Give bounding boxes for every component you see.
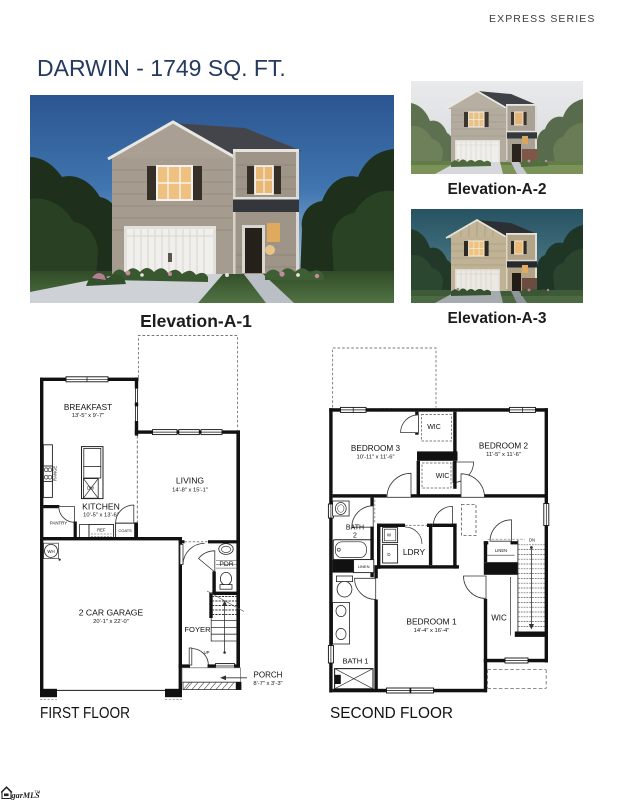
svg-text:BEDROOM 1: BEDROOM 1 (406, 617, 457, 627)
svg-text:WIC: WIC (436, 473, 450, 480)
svg-text:DW: DW (87, 486, 94, 491)
svg-text:KITCHEN: KITCHEN (82, 502, 120, 512)
svg-text:PORCH: PORCH (254, 671, 283, 680)
svg-text:WIC: WIC (491, 614, 507, 623)
svg-text:8'-7" x 3'-3": 8'-7" x 3'-3" (253, 681, 282, 687)
svg-text:11'-5" x 11'-6": 11'-5" x 11'-6" (486, 452, 521, 458)
svg-text:LINEN: LINEN (495, 548, 507, 553)
svg-text:SECOND FLOOR: SECOND FLOOR (330, 705, 453, 722)
svg-text:FIRST FLOOR: FIRST FLOOR (40, 705, 130, 722)
svg-text:COATS: COATS (118, 528, 132, 533)
svg-text:LIVING: LIVING (176, 476, 204, 486)
svg-text:BATH 1: BATH 1 (342, 657, 368, 666)
svg-text:BATH: BATH (346, 525, 364, 532)
svg-text:D: D (387, 552, 390, 557)
svg-text:BREAKFAST: BREAKFAST (64, 403, 112, 412)
svg-text:LDRY: LDRY (403, 547, 426, 557)
svg-text:WH: WH (47, 549, 54, 554)
svg-text:BEDROOM 2: BEDROOM 2 (479, 442, 529, 451)
svg-text:2 CAR GARAGE: 2 CAR GARAGE (79, 608, 144, 618)
svg-text:REF: REF (97, 528, 106, 533)
svg-text:2: 2 (353, 533, 357, 540)
svg-text:13'-5" x 9'-7": 13'-5" x 9'-7" (72, 413, 104, 419)
svg-text:WIC: WIC (427, 424, 441, 431)
svg-text:RANGE: RANGE (53, 466, 58, 481)
svg-text:BEDROOM 3: BEDROOM 3 (351, 444, 401, 453)
svg-text:DN: DN (529, 538, 535, 543)
svg-text:20'-1" x 22'-0": 20'-1" x 22'-0" (93, 619, 129, 625)
svg-text:PANTRY: PANTRY (50, 521, 67, 526)
svg-text:10'-5" x 13'-6": 10'-5" x 13'-6" (83, 513, 119, 519)
svg-text:PDR: PDR (219, 561, 233, 568)
svg-text:LINEN: LINEN (358, 564, 370, 569)
svg-text:TM: TM (35, 789, 41, 794)
svg-text:10'-11" x 11'-6": 10'-11" x 11'-6" (356, 454, 394, 460)
svg-text:FOYER: FOYER (184, 625, 211, 634)
svg-text:14'-4" x 16'-4": 14'-4" x 16'-4" (414, 628, 450, 634)
svg-text:14'-8" x 15'-1": 14'-8" x 15'-1" (172, 488, 208, 494)
